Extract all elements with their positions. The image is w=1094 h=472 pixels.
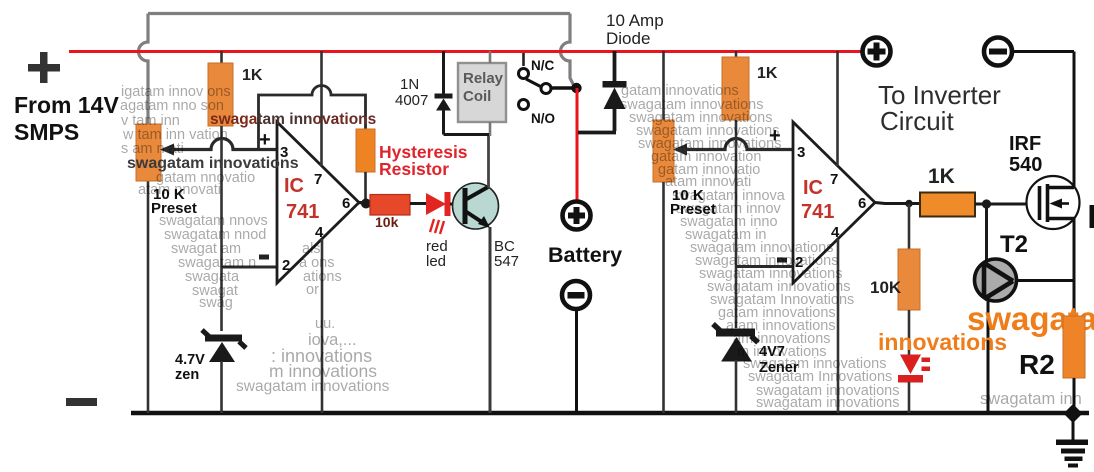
svg-text:or: or — [306, 282, 319, 298]
svg-text:741: 741 — [286, 201, 319, 223]
svg-text:SMPS: SMPS — [14, 119, 79, 145]
svg-text:IRF: IRF — [1009, 133, 1041, 155]
svg-text:6: 6 — [858, 195, 866, 212]
svg-text:741: 741 — [801, 201, 834, 223]
svg-text:swag: swag — [199, 295, 233, 311]
svg-text:10k: 10k — [375, 214, 399, 230]
svg-text:4: 4 — [831, 224, 840, 241]
svg-text:N/C: N/C — [531, 58, 555, 73]
svg-text:547: 547 — [494, 253, 519, 270]
svg-text:6: 6 — [342, 195, 350, 212]
svg-text:swagatam innovations: swagatam innovations — [210, 111, 376, 128]
svg-text:1K: 1K — [757, 65, 778, 82]
svg-text:Circuit: Circuit — [880, 106, 954, 136]
svg-text:7: 7 — [314, 171, 322, 188]
svg-text:+: + — [259, 129, 271, 151]
svg-text:4007: 4007 — [395, 92, 428, 109]
svg-text:Resistor: Resistor — [379, 159, 449, 179]
svg-text:R2: R2 — [1019, 349, 1055, 380]
svg-text:atam nnovati: atam nnovati — [138, 182, 221, 198]
svg-text:Diode: Diode — [606, 29, 650, 48]
svg-text:N/O: N/O — [531, 111, 555, 126]
svg-text:Relay: Relay — [463, 70, 504, 87]
svg-text:540: 540 — [1009, 154, 1042, 176]
svg-text:zen: zen — [175, 367, 199, 383]
svg-text:swagatam innovations: swagatam innovations — [127, 155, 299, 172]
svg-text:swagatam innovations: swagatam innovations — [236, 378, 390, 395]
svg-text:T2: T2 — [1000, 231, 1028, 258]
svg-text:agatam nno son: agatam nno son — [120, 98, 224, 114]
svg-text:From 14V: From 14V — [14, 92, 119, 118]
svg-text:4.7V: 4.7V — [175, 352, 205, 368]
svg-text:3: 3 — [797, 144, 805, 161]
svg-text:4: 4 — [315, 224, 324, 241]
svg-text:uu.: uu. — [315, 316, 335, 332]
svg-text:innovations: innovations — [878, 329, 1007, 355]
svg-text:10 Amp: 10 Amp — [606, 11, 664, 30]
svg-text:Coil: Coil — [463, 88, 491, 105]
svg-text:1K: 1K — [928, 165, 955, 188]
svg-text:led: led — [426, 253, 446, 270]
svg-text:1K: 1K — [242, 67, 263, 84]
svg-text:IC: IC — [803, 177, 823, 199]
svg-text:Battery: Battery — [548, 243, 622, 267]
svg-text:IC: IC — [284, 175, 304, 197]
svg-text:10K: 10K — [870, 278, 902, 297]
svg-text:2: 2 — [282, 257, 290, 274]
svg-text:7: 7 — [830, 171, 838, 188]
svg-text:1N: 1N — [400, 76, 419, 93]
svg-text:swagatam inn: swagatam inn — [980, 390, 1082, 408]
svg-text:swagatam innovations: swagatam innovations — [756, 395, 899, 411]
